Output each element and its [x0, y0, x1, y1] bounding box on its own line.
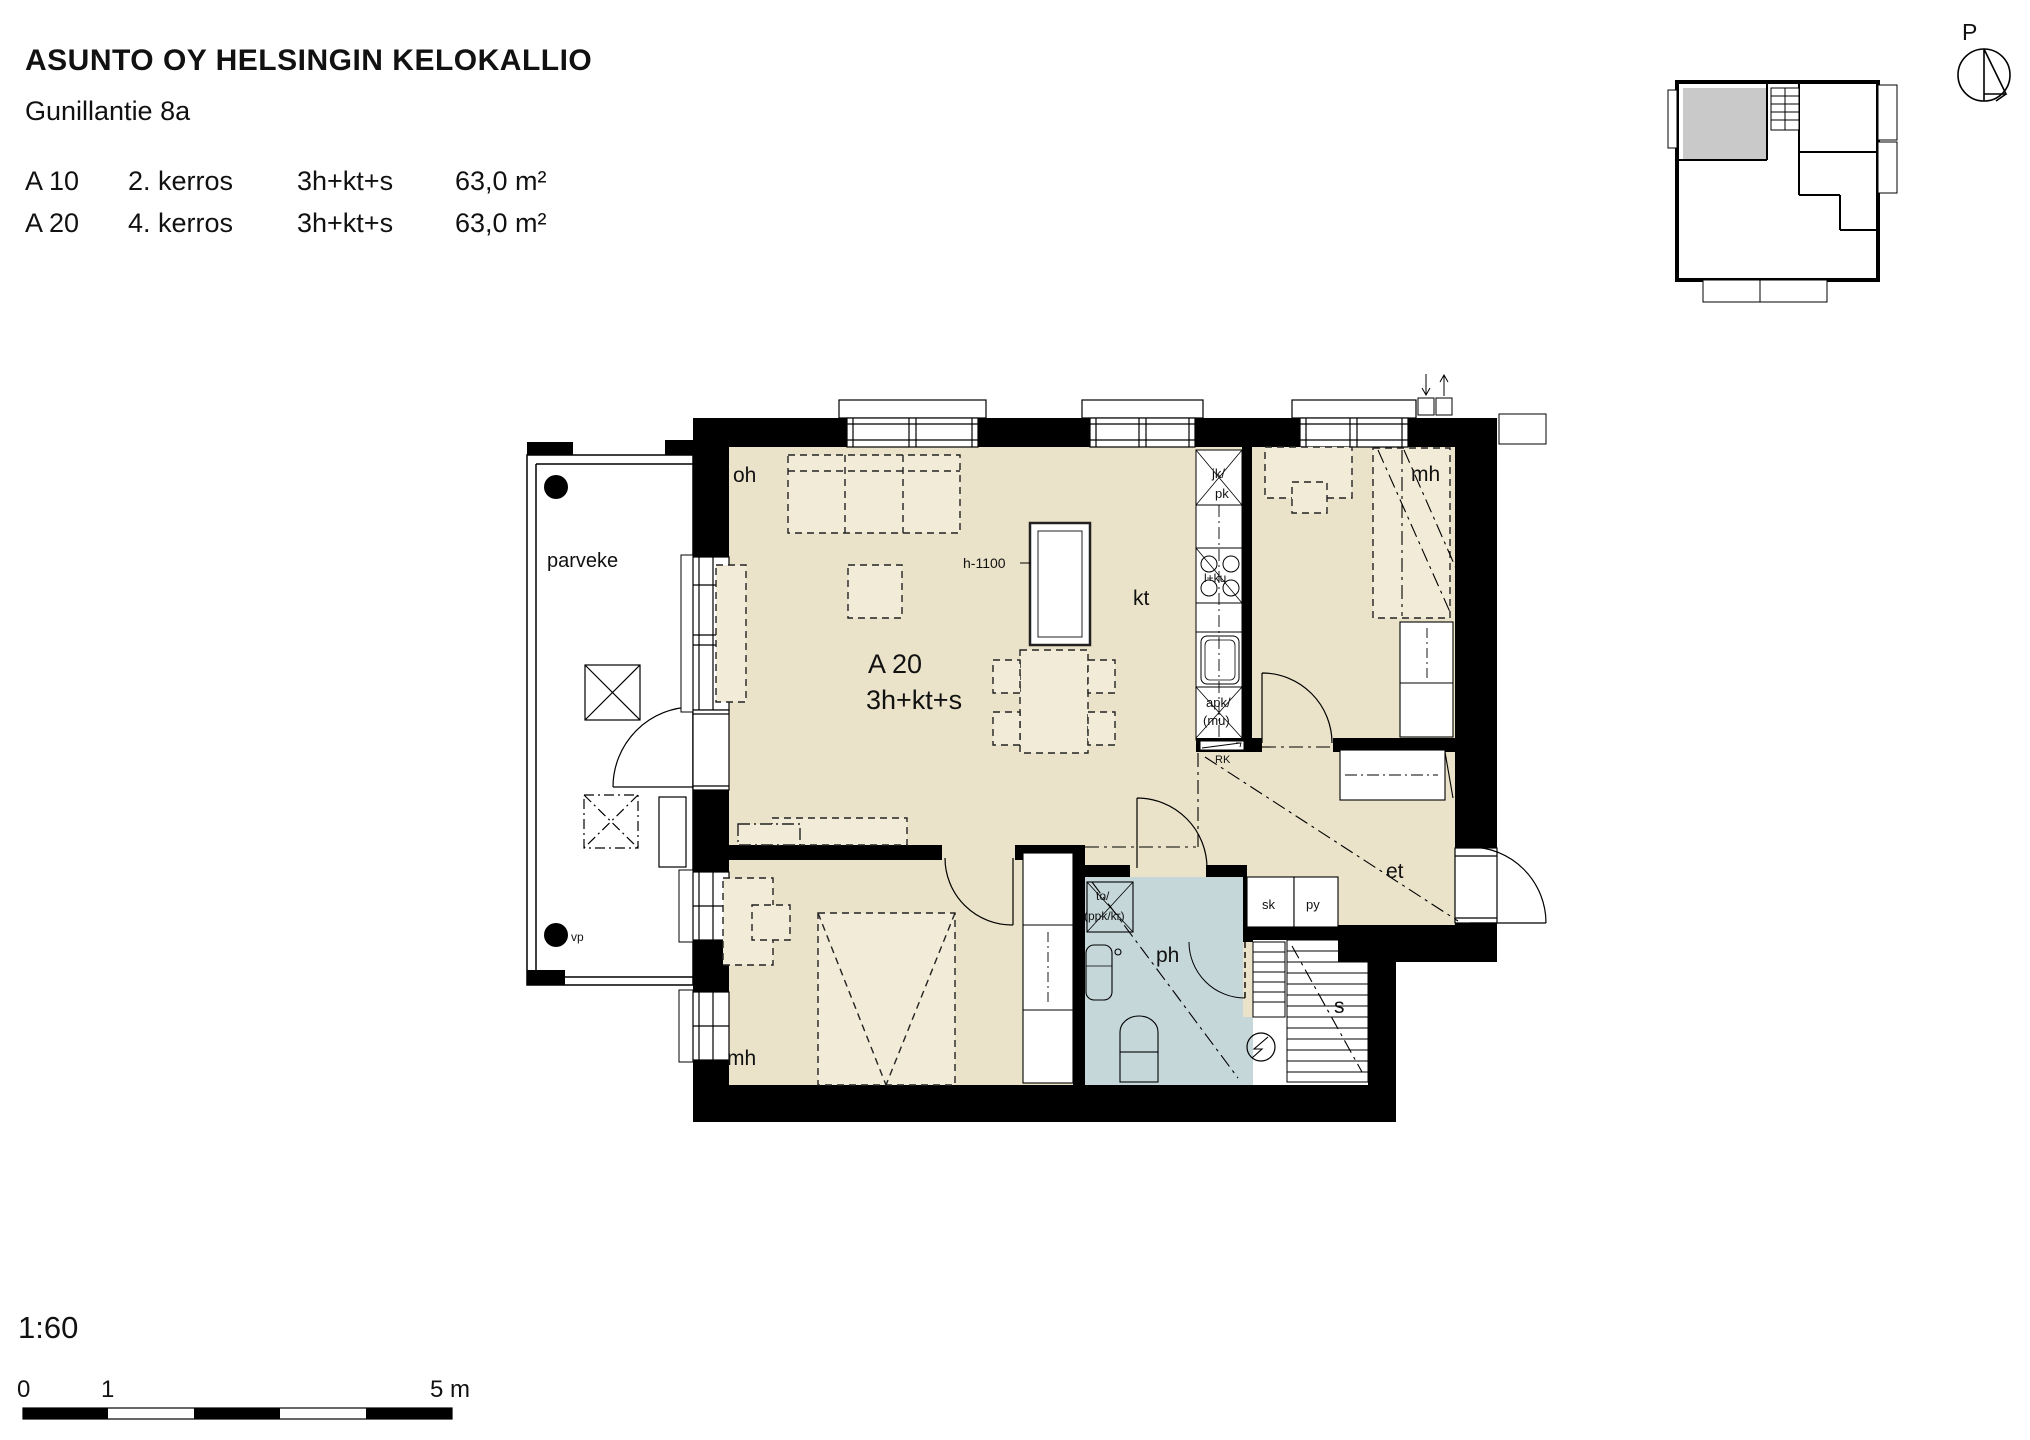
entry-door	[1455, 847, 1546, 923]
floorplan-sheet: ASUNTO OY HELSINGIN KELOKALLIO Gunillant…	[0, 0, 2030, 1440]
vent-icons	[1418, 374, 1452, 415]
room-label-balcony: parveke	[547, 550, 618, 572]
key-plan-highlight	[1683, 88, 1767, 160]
electric-board-label: RK	[1215, 754, 1231, 766]
dishwasher-label-1: apk/	[1206, 695, 1231, 710]
window	[1082, 400, 1203, 447]
unit-label: A 20	[868, 649, 922, 679]
key-plan	[1668, 82, 1897, 302]
window	[679, 990, 729, 1062]
sideboard-2	[738, 824, 800, 845]
room-label-hall: et	[1386, 860, 1404, 883]
wardrobe-top-bedroom	[1400, 622, 1453, 737]
counter-height-label: h-1100	[963, 555, 1006, 571]
tv-bench	[716, 565, 746, 702]
room-label-kitchen: kt	[1133, 587, 1150, 610]
closet-label-py: py	[1306, 897, 1320, 912]
wardrobe-bottom-bedroom	[1023, 853, 1073, 1083]
hall-cabinet	[1340, 750, 1453, 800]
kitchen-island	[1030, 523, 1090, 645]
balcony	[527, 440, 693, 985]
dishwasher-label-2: (mu)	[1203, 713, 1230, 728]
fridge-label-1: jk/	[1211, 466, 1225, 481]
room-label-bedroom-bottom: mh	[727, 1047, 756, 1070]
balcony-door-opening	[693, 710, 729, 790]
scale-bar	[23, 1408, 452, 1419]
north-arrow-icon: P	[1958, 19, 2010, 101]
room-label-bathroom: ph	[1156, 944, 1179, 967]
neighbour-sill	[1499, 414, 1546, 444]
room-label-bedroom-top: mh	[1411, 463, 1440, 486]
key-plan-stairs	[1771, 88, 1799, 130]
balcony-column	[544, 923, 568, 947]
sofa	[788, 455, 960, 533]
room-label-sauna: s	[1334, 995, 1345, 1018]
north-label: P	[1962, 19, 1977, 45]
closet-label-sk: sk	[1262, 897, 1276, 912]
window	[839, 400, 986, 447]
electric-board	[1200, 741, 1244, 750]
fridge-label-2: pk	[1215, 486, 1229, 501]
washer-label-1: to/	[1096, 889, 1110, 903]
coffee-table	[848, 565, 902, 618]
washer-label-2: (ppk/kr)	[1084, 909, 1125, 923]
balcony-column	[544, 475, 568, 499]
window	[679, 870, 729, 942]
unit-type-label: 3h+kt+s	[866, 685, 962, 715]
balcony-drain-label: vp	[571, 930, 584, 944]
room-label-living: oh	[733, 464, 756, 487]
stove-label: l+ku	[1204, 571, 1226, 585]
window	[1292, 400, 1416, 447]
floor-plan-drawing: oh kt mh mh et ph s parveke sk py A 20 3…	[0, 0, 2030, 1440]
